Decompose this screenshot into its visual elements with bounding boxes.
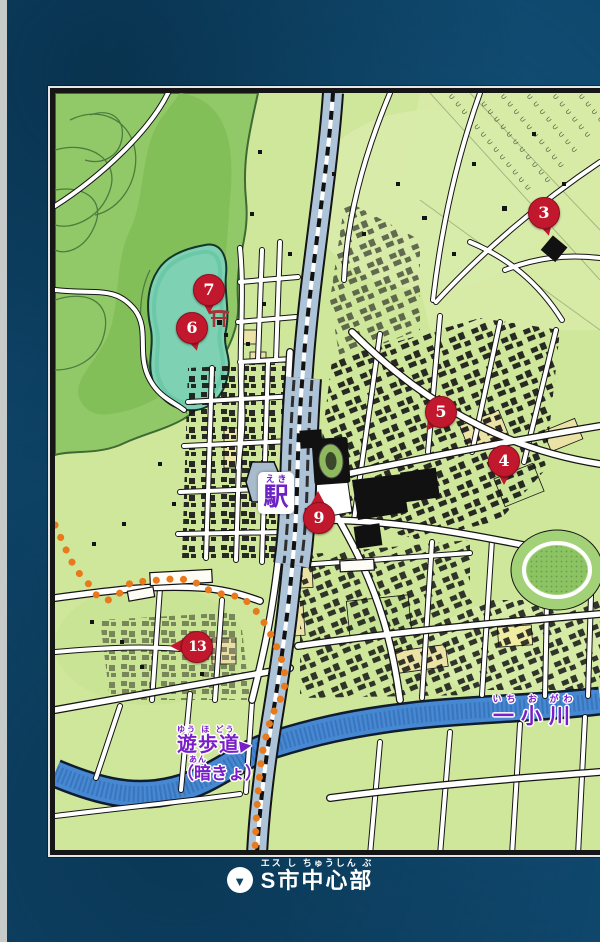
culvert-name: （暗きょ） — [177, 764, 262, 783]
marker-number: 13 — [188, 640, 205, 654]
river-furigana: いち お がわ — [450, 695, 600, 705]
map-marker-13[interactable]: 13 — [181, 631, 211, 661]
map-marker-5[interactable]: 5 — [425, 396, 455, 426]
pin-triangle-glyph: ▼ — [233, 875, 246, 888]
promenade-arrow-icon: ▶ — [239, 737, 253, 753]
marker-number: 6 — [186, 320, 197, 336]
promenade-label: ゆう ほ どう 遊歩道▶ あん （暗きょ） — [177, 726, 337, 784]
river-label: いち お がわ 一小川 — [450, 695, 600, 728]
map-caption: ▼ エス し ちゅうしん ぶ S市中心部 — [0, 859, 600, 893]
map-marker-3[interactable]: 3 — [528, 197, 558, 227]
marker-number: 3 — [538, 205, 549, 221]
marker-number: 7 — [203, 282, 214, 298]
city-map: ∪∪∪∪∪∪∪∪∪∪∪∪∪ ∪∪∪∪∪∪∪∪∪∪∪∪ ∪∪∪∪∪∪∪∪∪∪ ∪∪… — [50, 88, 600, 855]
map-marker-6[interactable]: 6 — [176, 312, 206, 342]
caption-text: エス し ちゅうしん ぶ S市中心部 — [261, 859, 374, 893]
park — [511, 530, 600, 610]
station-name: 駅 — [263, 483, 288, 511]
marker-number: 9 — [313, 510, 324, 526]
map-pin-icon: ▼ — [227, 867, 253, 893]
map-marker-9[interactable]: 9 — [303, 502, 333, 532]
station-label: えき 駅 — [258, 472, 294, 514]
promenade-name: 遊歩道▶ — [177, 734, 252, 756]
marker-number: 4 — [498, 453, 509, 469]
map-marker-4[interactable]: 4 — [488, 445, 518, 475]
marker-number: 5 — [435, 404, 446, 420]
caption-title: S市中心部 — [261, 868, 374, 893]
river-name: 一小川 — [493, 705, 577, 728]
map-marker-7[interactable]: 7 — [193, 274, 223, 304]
screen-edge-strip — [0, 0, 7, 942]
